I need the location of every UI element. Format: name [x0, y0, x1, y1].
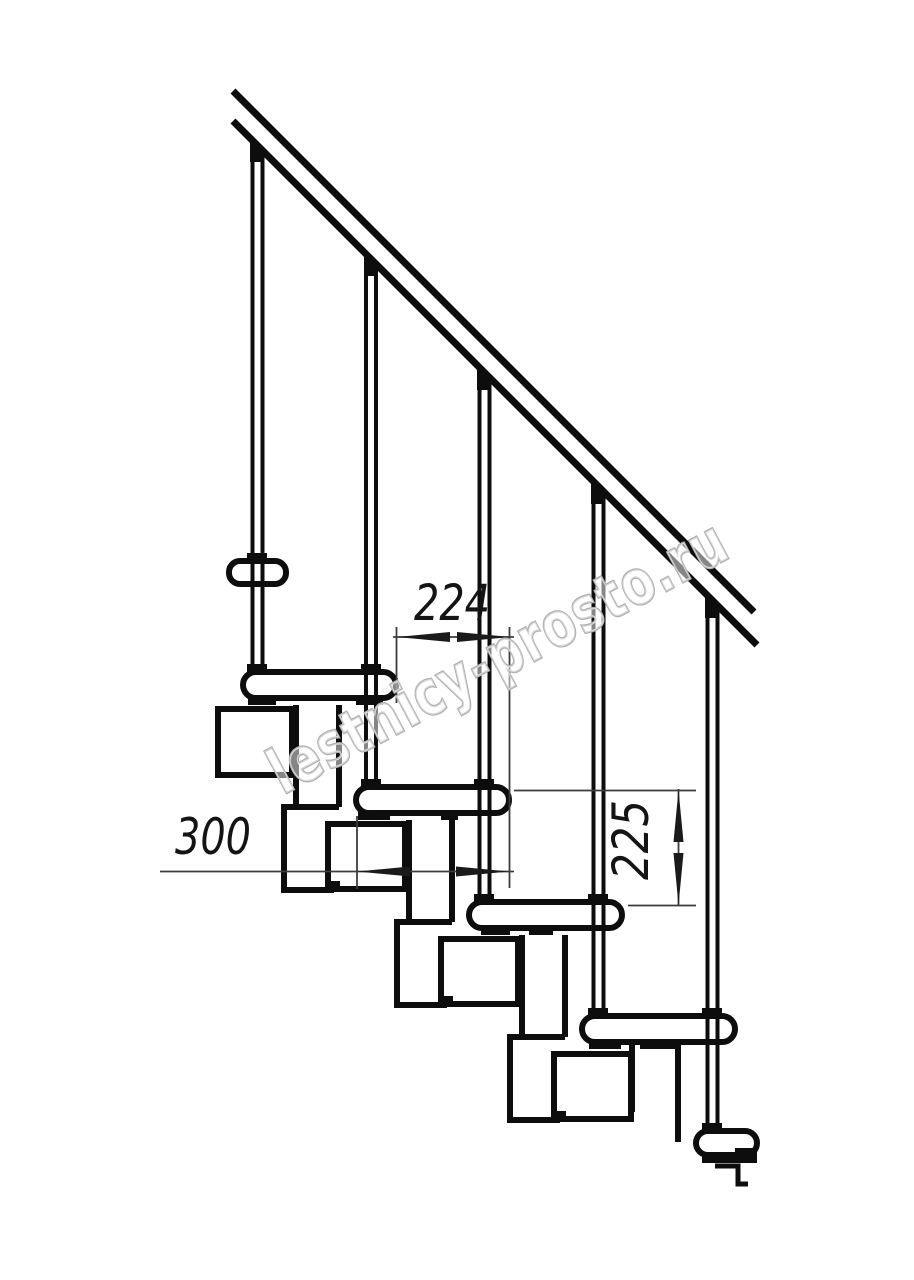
dimension-label-300: 300	[175, 808, 251, 866]
baluster-1	[253, 150, 263, 672]
dimension-label-224: 224	[414, 574, 490, 632]
support-module-4-cut	[632, 1045, 678, 1142]
arrow-right-icon	[456, 867, 509, 877]
arrow-down-icon	[674, 853, 684, 905]
upper-rail-bracket	[229, 561, 286, 584]
dimension-label-225: 225	[602, 800, 660, 880]
watermark: lestnicy-prosto.ru	[256, 504, 741, 808]
arrow-up-icon	[674, 790, 684, 842]
tread-3	[469, 902, 622, 928]
break-line	[715, 1166, 748, 1184]
baluster-5	[708, 606, 718, 1131]
arrow-left-icon	[397, 632, 450, 642]
drawing-sheet: 224 300 225 lestnicy-prosto.ru	[0, 0, 914, 1280]
staircase-drawing: 224 300 225 lestnicy-prosto.ru	[0, 0, 914, 1280]
tread-2	[356, 787, 509, 813]
tread-4	[582, 1016, 735, 1042]
